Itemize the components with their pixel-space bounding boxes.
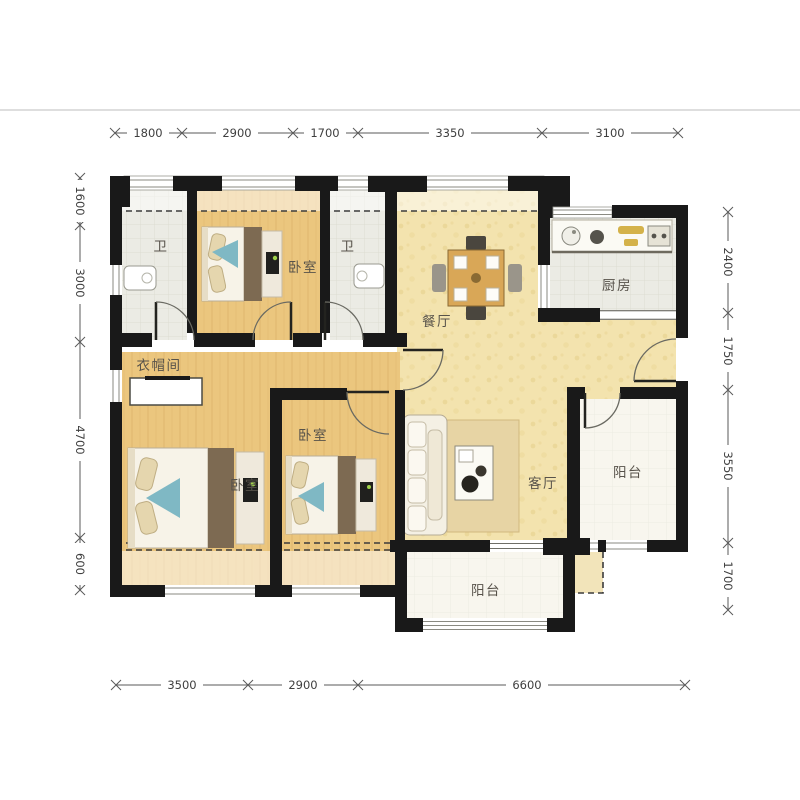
bathroom-1-label: 卫 [154,239,169,255]
dim-right-1: 1750 [721,330,735,372]
dim-left-2: 4700 [73,419,87,461]
svg-text:3550: 3550 [721,451,735,480]
svg-text:2400: 2400 [721,247,735,276]
balcony-south-window [423,618,547,632]
svg-text:2900: 2900 [288,678,317,692]
svg-text:2900: 2900 [222,126,251,140]
dim-left-1: 3000 [73,262,87,304]
dim-left-3: 600 [73,543,87,585]
svg-text:3000: 3000 [73,268,87,297]
dim-right-0: 2400 [721,241,735,283]
svg-text:3100: 3100 [595,126,624,140]
kitchen-top-window [553,207,612,218]
svg-text:3350: 3350 [435,126,464,140]
dim-top-3: 3350 [429,126,471,140]
bed-duvet [244,227,262,301]
bedroom-second-bed [286,456,376,534]
bed-duvet [208,448,234,548]
bathroom-2-label: 卫 [341,239,356,255]
dim-bottom-0: 3500 [161,678,203,692]
svg-text:1750: 1750 [721,336,735,365]
svg-text:1700: 1700 [721,561,735,590]
dim-bottom-1: 2900 [282,678,324,692]
bathroom-1-washstand [124,266,156,290]
living-balcony-slider [490,540,543,552]
kitchen-left-window [538,265,550,308]
dim-left-0: 1600 [73,180,87,222]
pier [508,176,542,191]
svg-text:1700: 1700 [310,126,339,140]
living-room-set [403,415,519,535]
svg-text:4700: 4700 [73,425,87,454]
entry-door-gap [676,338,688,381]
floor-plan-canvas: 卫 卧室 卫 衣帽间 卧室 卧室 餐厅 厨房 客厅 阳台 阳台 [0,0,800,800]
pier [368,176,427,192]
left-wall-window-1 [110,265,122,295]
dim-top-1: 2900 [216,126,258,140]
dim-bottom-2: 6600 [506,678,548,692]
cloakroom-label: 衣帽间 [137,358,182,374]
kitchen-label: 厨房 [602,278,632,294]
kitchen-pass-through [600,310,676,320]
hood-icon [618,226,644,234]
kitchen-counter [552,220,672,252]
svg-text:1600: 1600 [73,186,87,215]
master-bedroom-label: 卧室 [230,477,260,494]
dim-top-2: 1700 [304,126,346,140]
dim-top-4: 3100 [589,126,631,140]
sink-icon [562,227,580,245]
bedroom-north-bed [202,227,282,301]
bed-duvet [338,456,356,534]
tv-icon [360,482,373,502]
bedroom-wing-south-window-2 [292,585,360,597]
balcony-south-label: 阳台 [471,583,501,599]
double-sink-icon [648,226,670,246]
balcony-east-south-window [590,540,647,552]
burner-icon [590,230,604,244]
svg-text:1800: 1800 [133,126,162,140]
dim-top-0: 1800 [127,126,169,140]
pier [295,176,338,191]
table-decor [462,476,479,493]
bathroom-2-washstand [354,264,384,288]
svg-text:600: 600 [73,553,87,575]
bathroom-1-floor [122,190,187,340]
cloakroom-closet [130,378,202,405]
bedroom-north-label: 卧室 [288,259,318,276]
master-bedroom-bed [128,448,264,548]
equipment-platform-floor [575,552,603,593]
svg-text:6600: 6600 [512,678,541,692]
dining-room-label: 餐厅 [422,314,452,330]
left-wall-window-2 [110,370,122,402]
bedroom-wing-south-window-1 [165,585,255,597]
pier [173,176,222,191]
dim-right-3: 1700 [721,555,735,597]
svg-text:3500: 3500 [167,678,196,692]
tv-icon [266,252,279,274]
living-room-label: 客厅 [528,475,558,492]
floor-plan-page: 卫 卧室 卫 衣帽间 卧室 卧室 餐厅 厨房 客厅 阳台 阳台 [0,0,800,800]
bedroom-second-label: 卧室 [298,427,328,444]
dim-right-2: 3550 [721,445,735,487]
balcony-east-label: 阳台 [613,465,643,481]
